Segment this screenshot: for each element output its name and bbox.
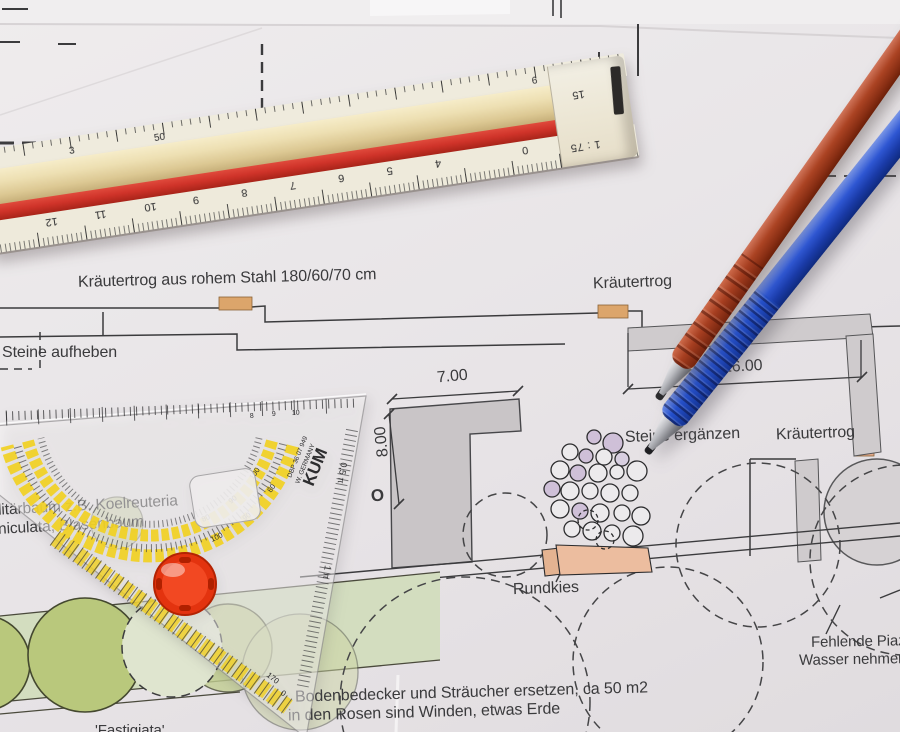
svg-text:9: 9 <box>272 411 276 418</box>
ruler-scale-label: 1 : 75 <box>569 138 601 154</box>
ruler-top-number: 6 <box>531 75 538 87</box>
ruler-number: 7 <box>289 179 297 192</box>
ruler-top-number: 3 <box>68 145 75 157</box>
ruler-number: 8 <box>240 186 248 199</box>
svg-text:8: 8 <box>250 413 254 420</box>
svg-text:1 π: 1 π <box>321 565 333 580</box>
ruler-number: 12 <box>45 215 59 229</box>
svg-text:10: 10 <box>292 409 300 417</box>
ruler-number: 6 <box>337 171 345 184</box>
ruler-end-fifteen: 15 <box>571 87 585 101</box>
ruler-number: 11 <box>94 207 107 221</box>
ruler-top-number: 50 <box>153 132 166 145</box>
photo-of-landscape-plan: Kräutertrog aus rohem Stahl 180/60/70 cm… <box>0 0 900 732</box>
ruler-number: 9 <box>192 193 200 206</box>
protractor-knob <box>154 553 216 615</box>
protractor-cutout-window <box>188 467 261 529</box>
ruler-number: 5 <box>386 164 394 177</box>
ruler-end-cap: 15 1 : 75 <box>547 55 638 167</box>
ruler-end-slot <box>610 66 624 115</box>
ruler-number: 10 <box>143 200 157 214</box>
ruler-number-zero: 0 <box>521 143 529 156</box>
ruler-number: 4 <box>434 157 442 170</box>
